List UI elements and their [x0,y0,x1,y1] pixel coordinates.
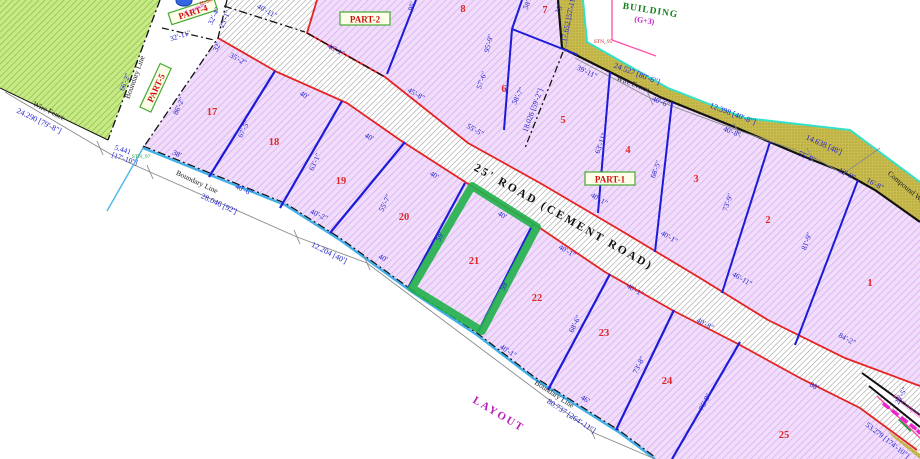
plot-number-19: 19 [336,176,347,187]
plot-number-7: 7 [542,5,547,16]
plot-number-2: 2 [765,215,770,226]
plot-number-18: 18 [269,137,280,148]
plot-number-17: 17 [207,107,218,118]
plot-number-5: 5 [560,115,565,126]
svg-text:PART-1: PART-1 [595,175,626,185]
svg-text:PART-2: PART-2 [350,15,381,25]
plot-number-3: 3 [693,174,698,185]
plot-number-25: 25 [779,430,790,441]
stn95-label: STN_95 [594,39,613,45]
part1-label: PART-1 [585,172,635,185]
plot-number-22: 22 [532,293,543,304]
plot-number-8: 8 [460,4,465,15]
part2-label: PART-2 [340,12,390,25]
plot-number-4: 4 [625,145,631,156]
plot-number-24: 24 [662,376,673,387]
plot-number-23: 23 [599,328,610,339]
layout-map-canvas: PART-2 PART-1 PART-4 PART-5 25' ROAD (CE… [0,0,920,459]
location-marker-icon [176,0,192,6]
plot-number-6: 6 [501,84,506,95]
survey-layout-drawing: PART-2 PART-1 PART-4 PART-5 25' ROAD (CE… [0,0,920,459]
plot-number-1: 1 [867,278,872,289]
plot-number-20: 20 [399,212,410,223]
plot-number-21: 21 [469,256,480,267]
